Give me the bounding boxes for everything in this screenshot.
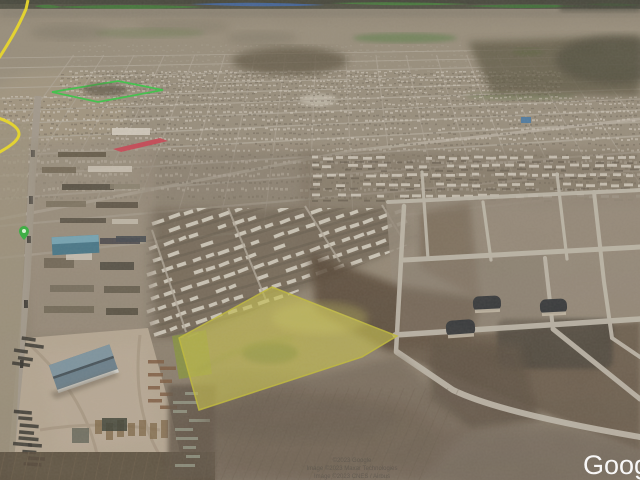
svg-text:©2023 Google: ©2023 Google: [333, 457, 372, 464]
svg-text:Googl: Googl: [583, 450, 640, 480]
svg-text:Image ©2023 CNES / Airbus: Image ©2023 CNES / Airbus: [314, 473, 390, 480]
svg-text:Image ©2023 Maxar Technologies: Image ©2023 Maxar Technologies: [306, 465, 397, 472]
